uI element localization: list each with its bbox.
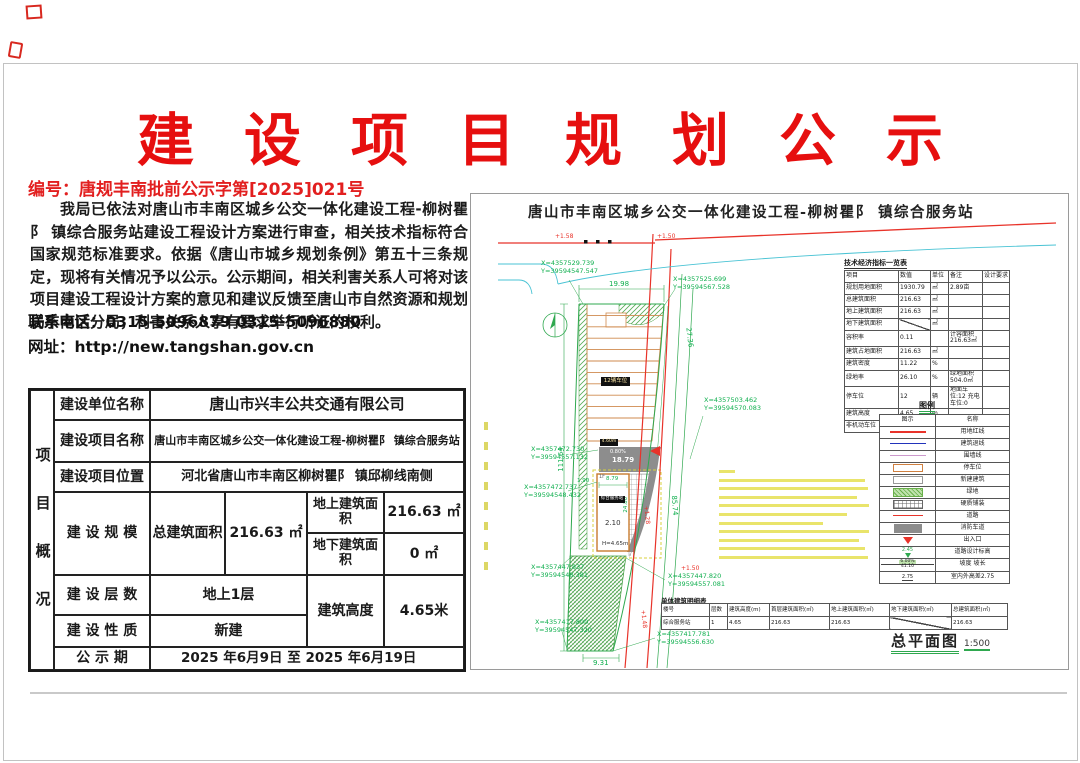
road-symbol-icon <box>893 515 923 516</box>
red-stamp-mark <box>26 4 43 19</box>
legend-row: 围墙线 <box>880 451 1010 463</box>
total-area-label: 总建筑面积 <box>150 492 225 575</box>
coord-label: X=4357529.739Y=39594547.547 <box>541 260 598 275</box>
building-symbol-icon <box>893 476 923 484</box>
road-dot <box>596 240 600 244</box>
level-diff-value: 2.75 <box>902 574 913 581</box>
floors-value: 地上1层 <box>150 575 307 615</box>
dim-road: 85.74 <box>670 495 678 515</box>
ramp-length-label: 18.79 <box>612 457 634 464</box>
project-overview-table: 项目概况 建设单位名称 唐山市兴丰公共交通有限公司 建设项目名称 唐山市丰南区城… <box>28 388 466 672</box>
table-side-label: 项目概况 <box>30 390 54 670</box>
road-elevation-mark: +1.58 <box>555 234 573 240</box>
table-row: 容积率0.11计容面积216.63㎡ <box>845 331 1010 347</box>
col-header: 备注 <box>949 271 983 283</box>
col-header: 楼号 <box>662 604 710 617</box>
legend-row: 出入口 <box>880 535 1010 547</box>
boundary-marks <box>484 422 489 582</box>
coord-label: X=4357525.699Y=39594567.528 <box>673 276 730 291</box>
period-label: 公 示 期 <box>54 647 150 670</box>
below-area-value: 0 ㎡ <box>384 533 464 575</box>
contact-website: 网址：http://new.tangshan.gov.cn <box>28 335 314 357</box>
redline-symbol-icon <box>890 431 926 433</box>
legend-table: 图示 名称 用地红线 建筑退线 围墙线 停车位 新建建筑 绿地 硬质铺装 道路 … <box>879 414 1010 584</box>
coord-label: X=4357417.800Y=39594547.320 <box>535 619 592 634</box>
paving-symbol-icon <box>893 500 923 509</box>
table-row: 绿地率26.10%绿地面积504.0㎡ <box>845 370 1010 386</box>
road-elevation-mark: +1.50 <box>657 234 675 240</box>
col-header: 总建筑面积(㎡) <box>952 604 1008 617</box>
col-header: 单位 <box>931 271 949 283</box>
road-elevation-mark: +1.50 <box>681 566 699 572</box>
unit-name-label: 建设单位名称 <box>54 390 150 420</box>
table-row: 综合服务站 1 4.65 216.63 216.63 216.63 <box>662 617 1008 630</box>
above-area-label: 地上建筑面积 <box>307 492 384 533</box>
col-header: 地上建筑面积(㎡) <box>830 604 890 617</box>
nature-label: 建 设 性 质 <box>54 615 150 647</box>
nature-value: 新建 <box>150 615 307 647</box>
dim-line-west <box>560 304 568 651</box>
scale-label: 建 设 规 模 <box>54 492 150 575</box>
coord-label: X=4357472.737Y=39594548.432 <box>524 484 581 499</box>
buildings-section: 楼号 层数 建筑高度(m) 首层建筑面积(㎡) 地上建筑面积(㎡) 地下建筑面积… <box>661 603 1008 630</box>
below-area-label: 地下建筑面积 <box>307 533 384 575</box>
road-redline-north <box>655 223 1056 240</box>
announcement-page: 建设项目规划公示 编号：唐规丰南批前公示字第[2025]021号 我局已依法对唐… <box>0 0 1080 763</box>
table-row: 规划用地面积1930.79㎡2.89亩 <box>845 283 1010 295</box>
table-row: 地上建筑面积216.63㎡ <box>845 307 1010 319</box>
buildings-table: 楼号 层数 建筑高度(m) 首层建筑面积(㎡) 地上建筑面积(㎡) 地下建筑面积… <box>661 603 1008 630</box>
road-dot <box>608 240 612 244</box>
project-name-label: 建设项目名称 <box>54 420 150 462</box>
legend-row: 2.75室内外高差2.75 <box>880 571 1010 583</box>
dim-south: 9.31 <box>593 660 609 667</box>
legend-row: 6.00%41.10坡度 坡长 <box>880 559 1010 572</box>
plan-name: 总平面图 <box>891 632 959 654</box>
slope-bottom-value: 41.10 <box>901 564 914 569</box>
col-header: 首层建筑面积(㎡) <box>770 604 830 617</box>
dim-building-height: H=4.65m <box>602 542 628 548</box>
table-row: 建筑密度11.22% <box>845 358 1010 370</box>
site-plan-panel: 唐山市丰南区城乡公交一体化建设工程-柳树瞿阝 镇综合服务站 <box>470 193 1069 670</box>
dim-building-width: 8.79 <box>606 477 618 483</box>
project-location-label: 建设项目位置 <box>54 462 150 492</box>
gate-width-label: 4.60m <box>600 439 618 446</box>
floor-label: 1F <box>599 475 605 480</box>
table-row: 总建筑面积216.63㎡ <box>845 295 1010 307</box>
wall-symbol-icon <box>890 455 926 456</box>
unit-name-value: 唐山市兴丰公共交通有限公司 <box>150 390 464 420</box>
col-header: 项目 <box>845 271 899 283</box>
col-header: 建筑高度(m) <box>728 604 770 617</box>
document-number: 编号：唐规丰南批前公示字第[2025]021号 <box>28 175 364 200</box>
legend-row: 建筑退线 <box>880 439 1010 451</box>
legend-row: 硬质铺装 <box>880 499 1010 511</box>
road-elevation-mark: +1.48 <box>639 610 647 629</box>
entrance-symbol-icon <box>903 537 913 544</box>
floors-label: 建 设 层 数 <box>54 575 150 615</box>
legend-row: 消防车道 <box>880 523 1010 535</box>
green-symbol-icon <box>893 488 923 497</box>
col-header: 层数 <box>710 604 728 617</box>
dim-west: 111.64 <box>558 447 565 472</box>
green-strip-west <box>579 304 587 549</box>
legend-row: 道路 <box>880 511 1010 523</box>
page-title: 建设项目规划公示 <box>0 95 1080 177</box>
legend-row: 用地红线 <box>880 427 1010 439</box>
road-dot <box>584 240 588 244</box>
legend-row: 新建建筑 <box>880 475 1010 487</box>
project-name-value: 唐山市丰南区城乡公交一体化建设工程-柳树瞿阝 镇综合服务站 <box>150 420 464 462</box>
legend-row: 停车位 <box>880 463 1010 475</box>
dim-building-offset: 2.10 <box>605 520 621 527</box>
elevation-arrow-icon <box>905 553 911 558</box>
legend-section: 图示 名称 用地红线 建筑退线 围墙线 停车位 新建建筑 绿地 硬质铺装 道路 … <box>879 414 1010 584</box>
dim-east: 27.36 <box>684 327 693 348</box>
legend-row: 2.45道路设计标高 <box>880 547 1010 559</box>
red-stamp-mark <box>8 41 24 59</box>
firelane-symbol-icon <box>894 524 922 533</box>
bottom-separator <box>30 692 1067 694</box>
coord-label: X=4357503.462Y=39594570.083 <box>704 397 761 412</box>
col-header: 数值 <box>899 271 931 283</box>
road-elevation-mark: +1.28 <box>642 506 650 525</box>
parking-symbol-icon <box>893 464 923 472</box>
plan-scale-label: 总平面图1:500 <box>891 630 990 651</box>
col-header: 设计要求 <box>983 271 1010 283</box>
dim-west-gap: 1.90 <box>577 479 589 485</box>
col-header: 图示 <box>880 415 936 427</box>
contact-phone: 联系电话：0315-5096879 0315-5096880 <box>28 310 361 332</box>
indicators-title: 技术经济指标一览表 <box>844 258 907 269</box>
table-row: 地下建筑面积㎡ <box>845 319 1010 331</box>
table-row: 建筑占地面积216.63㎡ <box>845 346 1010 358</box>
coord-label: X=4357447.837Y=39594548.381 <box>531 564 588 579</box>
legend-row: 绿地 <box>880 487 1010 499</box>
legend-title: 图例 <box>919 400 935 411</box>
building-height-value: 4.65米 <box>384 575 464 647</box>
coord-label: X=4357447.820Y=39594557.081 <box>668 573 725 588</box>
col-header: 名称 <box>936 415 1010 427</box>
north-arrow <box>543 313 567 337</box>
elevation-symbol-value: 2.45 <box>881 548 934 553</box>
setback-symbol-icon <box>890 443 926 444</box>
ramp-slope-label: 0.80% <box>610 450 626 455</box>
project-location-value: 河北省唐山市丰南区柳树瞿阝 镇邱柳线南侧 <box>150 462 464 492</box>
period-value: 2025 年6月9日 至 2025 年6月19日 <box>150 647 464 670</box>
parking-count-label: 12辆车位 <box>601 377 630 386</box>
total-area-value: 216.63 ㎡ <box>225 492 307 575</box>
above-area-value: 216.63 ㎡ <box>384 492 464 533</box>
building-height-label: 建筑高度 <box>307 575 384 647</box>
building-name-label: 综合服务站 <box>599 496 625 503</box>
plan-scale: 1:500 <box>964 639 990 651</box>
col-header: 地下建筑面积(㎡) <box>890 604 952 617</box>
coord-label: X=4357417.781Y=39594556.630 <box>657 631 714 646</box>
notes-block <box>719 470 871 565</box>
road-edge-cyan <box>498 280 532 294</box>
dim-top-width: 19.98 <box>609 281 629 288</box>
